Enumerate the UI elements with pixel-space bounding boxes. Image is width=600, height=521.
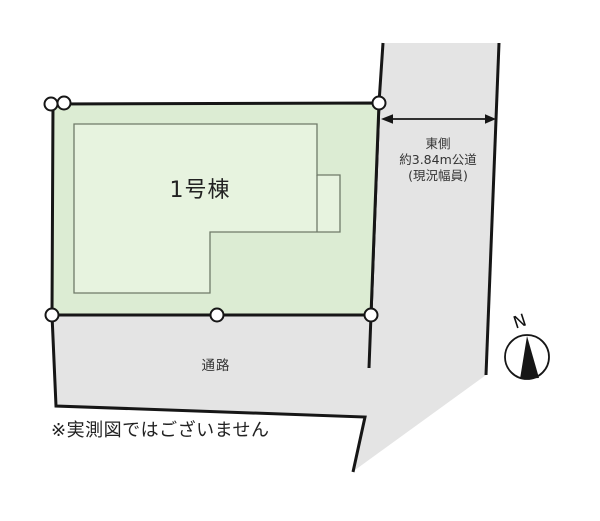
road-label: 東側 約3.84m公道 (現況幅員) bbox=[399, 136, 477, 184]
passage-label: 通路 bbox=[202, 354, 231, 374]
vertex-marker bbox=[211, 309, 224, 322]
road-label-side: 東側 bbox=[399, 136, 477, 152]
site-plan-canvas: 1号棟 東側 約3.84m公道 (現況幅員) 通路 ※実測図ではございません N bbox=[0, 0, 600, 521]
vertex-marker bbox=[45, 98, 58, 111]
disclaimer-note: ※実測図ではございません bbox=[51, 416, 270, 442]
vertex-marker bbox=[365, 309, 378, 322]
vertex-marker bbox=[46, 309, 59, 322]
vertex-marker bbox=[373, 97, 386, 110]
road-label-current-width: (現況幅員) bbox=[399, 168, 477, 184]
building-label: 1号棟 bbox=[170, 172, 231, 204]
compass bbox=[505, 335, 549, 379]
vertex-marker bbox=[58, 97, 71, 110]
site-plan-drawing bbox=[0, 0, 600, 521]
road-label-width: 約3.84m公道 bbox=[399, 152, 477, 168]
